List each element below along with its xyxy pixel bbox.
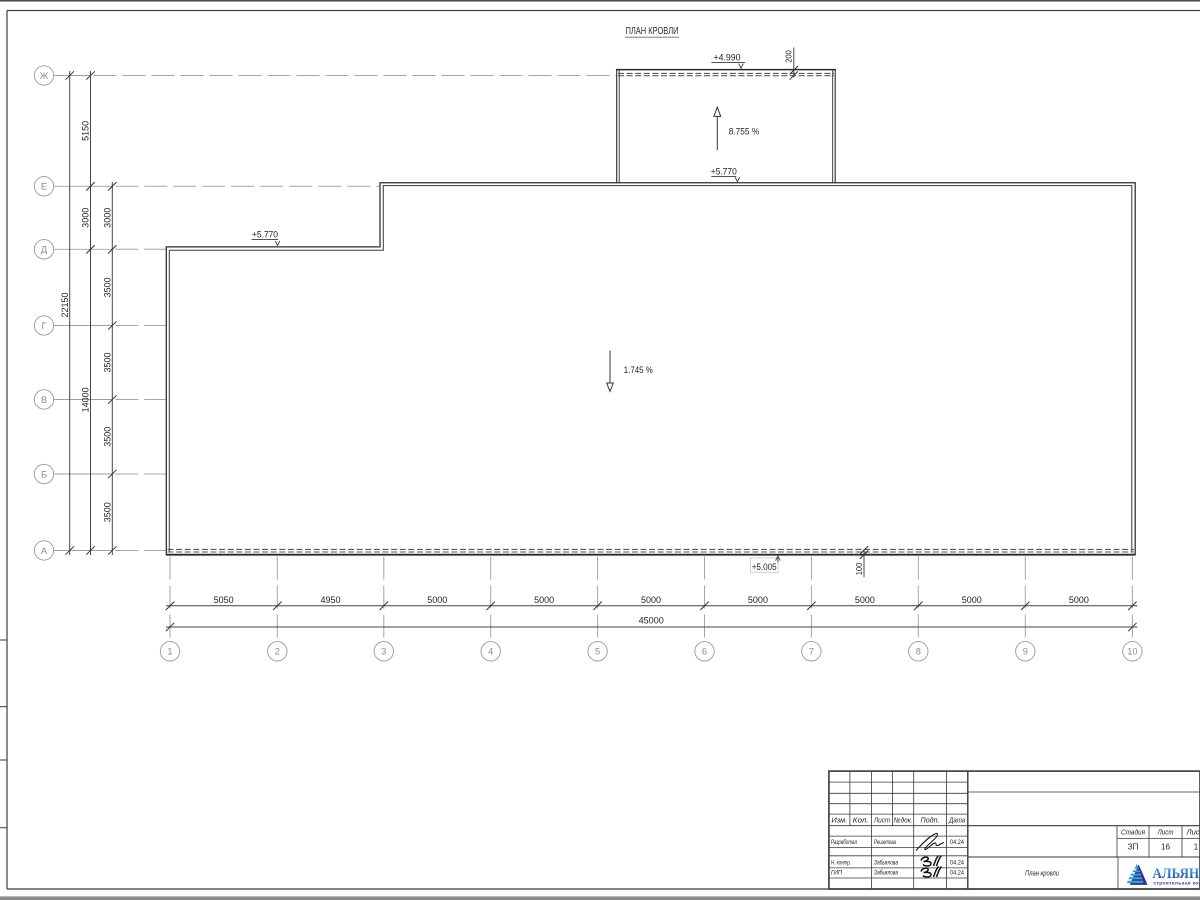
svg-text:1.745 %: 1.745 %	[624, 365, 653, 375]
svg-text:3500: 3500	[103, 427, 113, 447]
svg-text:Ж: Ж	[40, 71, 49, 81]
svg-text:Е: Е	[41, 182, 47, 192]
svg-text:Б: Б	[41, 469, 47, 479]
svg-text:Н. контр.: Н. контр.	[831, 859, 851, 866]
svg-text:45000: 45000	[639, 616, 664, 626]
svg-text:3000: 3000	[81, 208, 91, 228]
svg-text:04.24: 04.24	[950, 870, 964, 877]
svg-text:5000: 5000	[534, 595, 554, 605]
svg-text:1: 1	[167, 647, 172, 657]
svg-text:5: 5	[595, 647, 600, 657]
svg-text:2: 2	[275, 647, 280, 657]
svg-text:ПЛАН КРОВЛИ: ПЛАН КРОВЛИ	[626, 25, 679, 37]
svg-text:строительная компания: строительная компания	[1154, 882, 1200, 887]
svg-text:5000: 5000	[748, 595, 768, 605]
svg-text:5000: 5000	[427, 595, 447, 605]
svg-text:Лист: Лист	[873, 816, 890, 825]
svg-text:16: 16	[1161, 843, 1171, 852]
svg-text:5000: 5000	[641, 595, 661, 605]
svg-text:№док.: №док.	[894, 816, 913, 825]
svg-text:4: 4	[488, 647, 493, 657]
svg-text:5150: 5150	[81, 121, 91, 141]
svg-text:+5.770: +5.770	[252, 230, 278, 240]
svg-text:Изм.: Изм.	[831, 816, 847, 825]
svg-text:А: А	[41, 546, 48, 556]
svg-text:Забьялова: Забьялова	[874, 869, 898, 877]
svg-text:5000: 5000	[962, 595, 982, 605]
svg-text:100: 100	[854, 563, 864, 576]
svg-text:+4.990: +4.990	[714, 53, 741, 63]
svg-text:5000: 5000	[855, 595, 875, 605]
svg-text:3500: 3500	[103, 277, 113, 297]
svg-text:Разработал: Разработал	[831, 838, 857, 846]
svg-text:3: 3	[381, 647, 386, 657]
svg-text:8: 8	[916, 647, 921, 657]
svg-text:Лис: Лис	[1186, 828, 1200, 837]
svg-text:Д: Д	[41, 245, 48, 255]
svg-text:Кол.: Кол.	[853, 816, 869, 825]
svg-text:5050: 5050	[214, 595, 234, 605]
svg-text:+5.005: +5.005	[752, 562, 777, 572]
svg-text:10: 10	[1127, 647, 1137, 657]
svg-text:200: 200	[784, 50, 794, 63]
svg-text:Дата: Дата	[948, 816, 965, 825]
svg-text:9: 9	[1023, 647, 1028, 657]
svg-text:5000: 5000	[1069, 595, 1089, 605]
svg-text:3500: 3500	[103, 502, 113, 522]
svg-text:3500: 3500	[103, 352, 113, 372]
svg-text:В: В	[41, 395, 47, 405]
svg-text:ЗП: ЗП	[1128, 843, 1139, 852]
svg-text:14000: 14000	[81, 387, 91, 412]
svg-text:План кровли: План кровли	[1025, 869, 1060, 878]
svg-text:04.24: 04.24	[950, 839, 964, 846]
svg-text:Стадия: Стадия	[1121, 828, 1145, 837]
svg-text:3000: 3000	[103, 208, 113, 228]
svg-text:04.24: 04.24	[950, 859, 964, 866]
svg-text:22150: 22150	[60, 292, 70, 317]
svg-text:Решетова: Решетова	[874, 839, 896, 846]
svg-text:+5.770: +5.770	[711, 167, 737, 177]
svg-text:Подп.: Подп.	[921, 816, 940, 825]
svg-text:Забьялова: Забьялова	[874, 858, 898, 866]
svg-text:1: 1	[1194, 843, 1199, 852]
svg-text:8.755 %: 8.755 %	[729, 127, 760, 137]
svg-text:ГИП: ГИП	[831, 870, 842, 877]
svg-text:4950: 4950	[321, 595, 341, 605]
svg-text:6: 6	[702, 647, 707, 657]
svg-text:7: 7	[809, 647, 814, 657]
svg-text:АЛЬЯНС: АЛЬЯНС	[1153, 866, 1200, 882]
svg-text:Г: Г	[41, 321, 46, 331]
svg-text:Лист: Лист	[1157, 828, 1174, 837]
